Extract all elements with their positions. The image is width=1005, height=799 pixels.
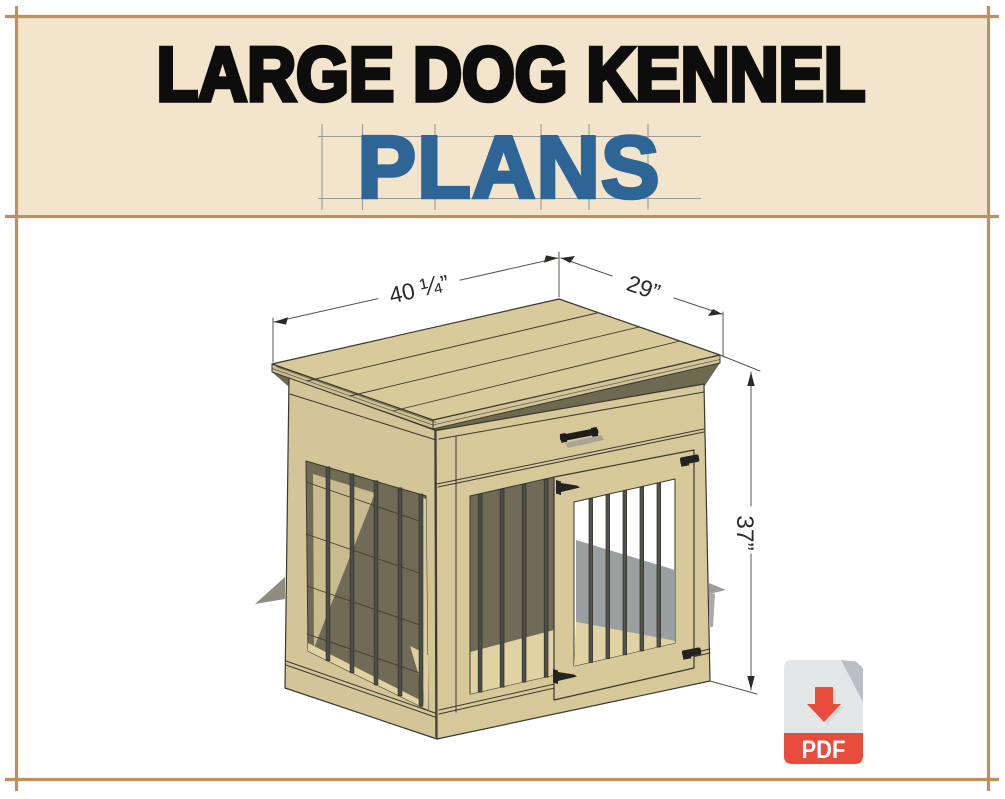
svg-text:PDF: PDF (802, 736, 846, 764)
svg-text:37”: 37” (731, 515, 758, 550)
svg-text:LARGE DOG KENNEL: LARGE DOG KENNEL (157, 33, 866, 117)
svg-text:PLANS: PLANS (357, 118, 660, 217)
